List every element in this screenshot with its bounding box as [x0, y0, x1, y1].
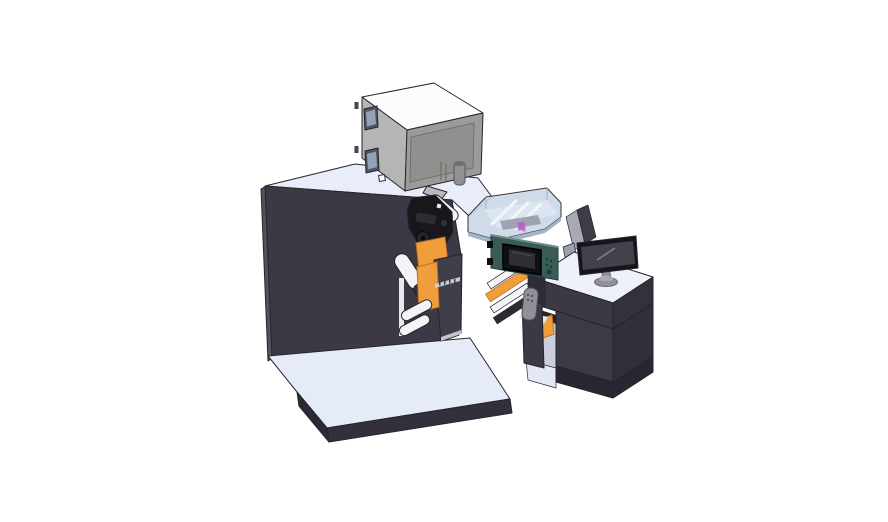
box-corner-plate	[379, 175, 386, 182]
gear-small	[441, 220, 447, 226]
gear-hub	[421, 236, 426, 241]
panel-tab	[487, 241, 493, 248]
vent-dot	[546, 258, 548, 260]
handle-dot	[531, 295, 533, 297]
strip-dash	[439, 282, 441, 286]
handle-dot	[527, 294, 529, 296]
box-window-upper-glass	[366, 110, 376, 127]
strip-dash	[449, 280, 451, 284]
control-panel	[487, 235, 558, 280]
box-hinge-bottom	[355, 146, 359, 153]
vent-dot	[550, 266, 552, 268]
handle-dot	[527, 299, 529, 301]
vent-dot	[550, 260, 552, 262]
strip-dash	[454, 279, 456, 283]
cad-render-canvas	[0, 0, 888, 522]
handle-dot	[531, 300, 533, 302]
door-handle	[521, 287, 538, 320]
ink-dot	[522, 228, 525, 231]
box-window-lower-glass	[367, 152, 377, 170]
panel-knob	[547, 270, 552, 275]
box-hinge-top	[355, 102, 359, 109]
vent-dot	[546, 264, 548, 266]
strip-dash	[444, 281, 446, 285]
panel-tab	[487, 258, 493, 265]
cad-render-svg	[0, 0, 888, 522]
base-platform	[268, 338, 512, 442]
box-knob-cap	[454, 161, 465, 166]
monitor-base-top	[599, 276, 613, 282]
